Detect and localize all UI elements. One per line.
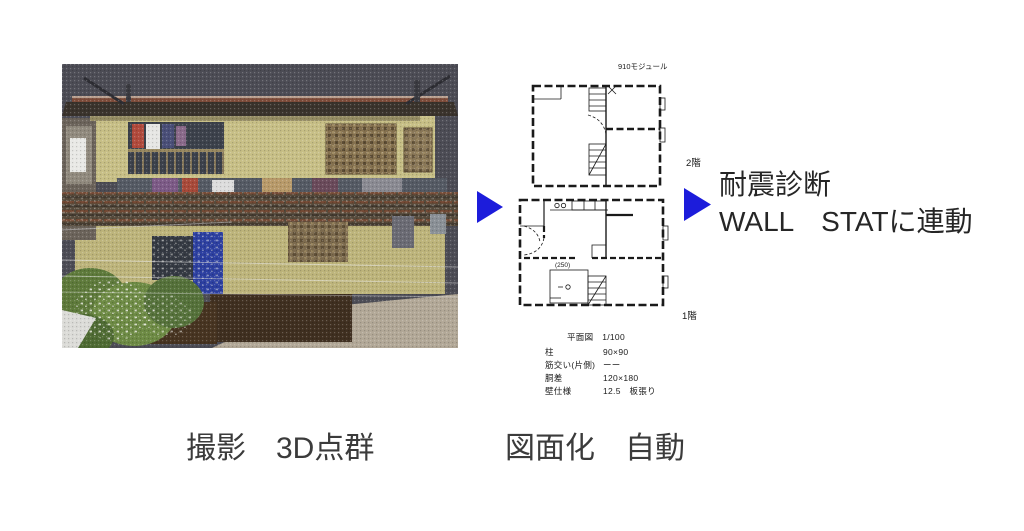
result-line-1: 耐震診断 [719, 166, 973, 203]
legend-label: 胴差 [545, 372, 603, 385]
legend-value: ーー [603, 359, 621, 372]
legend-row: 胴差 120×180 [545, 372, 720, 385]
result-line-2: WALL STATに連動 [719, 203, 973, 240]
plan-legend: 平面図 1/100 柱 90×90 筋交い(片側) ーー 胴差 120×180 … [545, 331, 720, 398]
pointcloud-house-image [62, 64, 458, 348]
floor1-label: 1階 [682, 311, 697, 322]
legend-row: 柱 90×90 [545, 346, 720, 359]
legend-value: 120×180 [603, 372, 638, 385]
result-text: 耐震診断 WALL STATに連動 [719, 166, 973, 240]
floor2-label: 2階 [686, 158, 701, 169]
legend-value: 12.5 板張り [603, 385, 656, 398]
caption-pointcloud: 撮影 3D点群 [186, 423, 374, 467]
legend-value: 90×90 [603, 346, 628, 359]
legend-label: 壁仕様 [545, 385, 603, 398]
legend-label: 柱 [545, 346, 603, 359]
slide: 910モジュール 2階 (250) 1階 平面図 1/100 柱 90×90 筋… [0, 0, 1024, 531]
caption-drawing: 図面化 自動 [505, 423, 685, 467]
legend-label: 筋交い(片側) [545, 359, 603, 372]
legend-title: 平面図 1/100 [567, 331, 720, 344]
legend-row: 壁仕様 12.5 板張り [545, 385, 720, 398]
dim-label: (250) [555, 262, 570, 269]
pointcloud-illustration [62, 64, 458, 348]
module-label: 910モジュール [618, 62, 668, 71]
flow-arrow-2-icon [684, 188, 711, 221]
legend-row: 筋交い(片側) ーー [545, 359, 720, 372]
